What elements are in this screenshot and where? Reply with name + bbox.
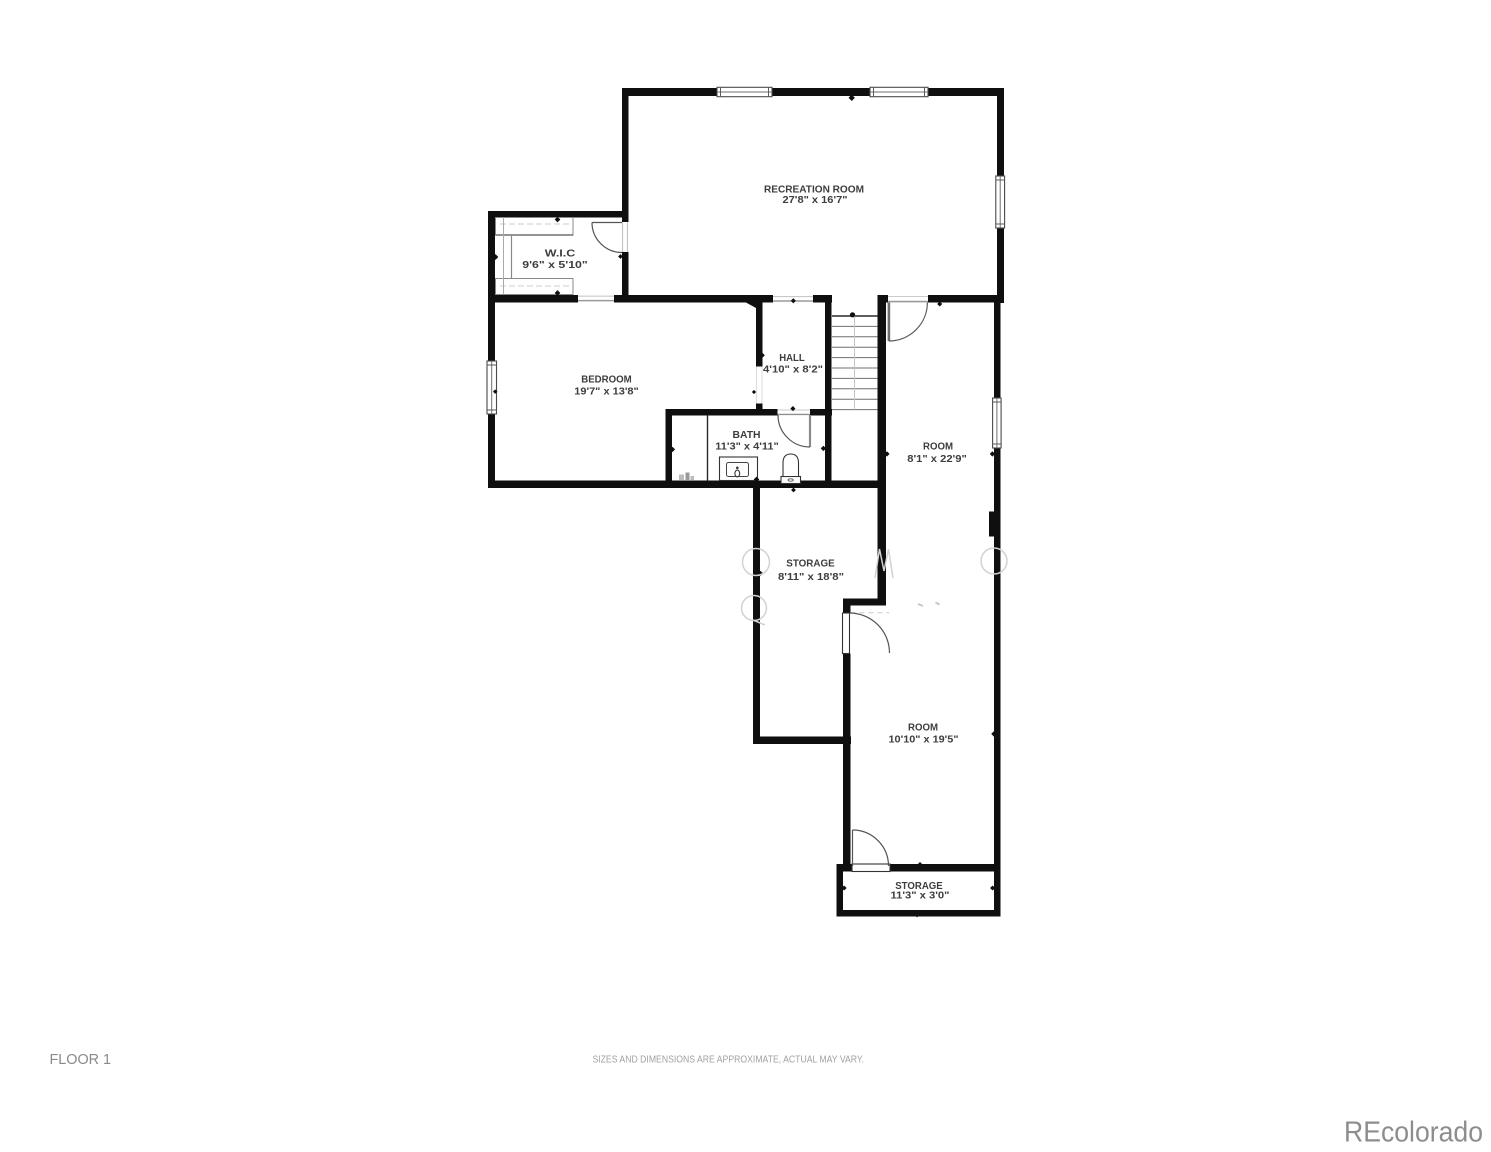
svg-text:SIZES AND DIMENSIONS ARE APPRO: SIZES AND DIMENSIONS ARE APPROXIMATE, AC… [592,1055,864,1066]
svg-text:10'10" x 19'5": 10'10" x 19'5" [889,733,959,745]
svg-text:BATH: BATH [733,429,761,441]
svg-text:11'3" x 4'11": 11'3" x 4'11" [715,440,779,452]
svg-text:W.I.C: W.I.C [545,248,576,260]
svg-text:ROOM: ROOM [908,721,938,733]
svg-text:HALL: HALL [779,352,805,364]
svg-text:9'6" x 5'10": 9'6" x 5'10" [522,259,588,271]
svg-text:REcolorado: REcolorado [1344,1117,1483,1149]
svg-text:8'11" x 18'8": 8'11" x 18'8" [778,571,844,583]
svg-text:11'3" x 3'0": 11'3" x 3'0" [891,891,950,902]
svg-text:FLOOR 1: FLOOR 1 [50,1051,112,1068]
svg-text:27'8" x 16'7": 27'8" x 16'7" [783,194,848,206]
svg-text:STORAGE: STORAGE [786,558,835,570]
svg-text:ROOM: ROOM [923,441,953,453]
svg-text:BEDROOM: BEDROOM [581,374,632,386]
svg-text:8'1" x 22'9": 8'1" x 22'9" [907,453,967,465]
svg-text:19'7" x 13'8": 19'7" x 13'8" [574,385,639,397]
svg-text:4'10" x 8'2": 4'10" x 8'2" [763,364,823,376]
